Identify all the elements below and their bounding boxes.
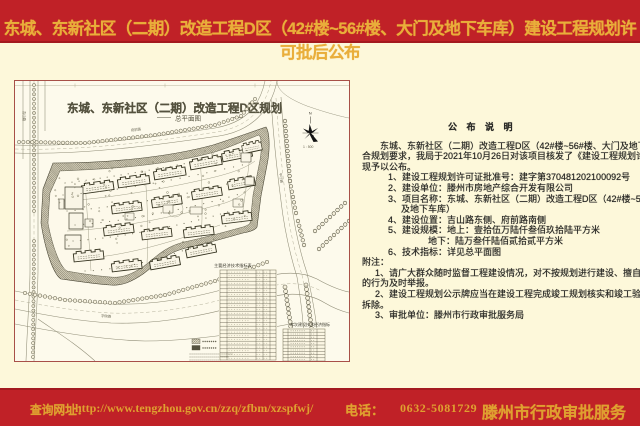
svg-text:N: N [309,111,312,116]
svg-text:总平面图: 总平面图 [175,114,201,123]
svg-text:1 : 500: 1 : 500 [303,145,313,149]
svg-text:东城、东新社区（二期）改造工程D区规划: 东城、东新社区（二期）改造工程D区规划 [67,101,282,115]
svg-text:本次建设技术经济指标: 本次建设技术经济指标 [290,321,330,327]
svg-text:府前路: 府前路 [130,126,141,132]
svg-text:学院路: 学院路 [101,313,112,319]
svg-text:平行路: 平行路 [278,172,284,183]
svg-text:吉山路: 吉山路 [22,111,27,122]
svg-text:主要经济技术指标表: 主要经济技术指标表 [214,262,253,269]
